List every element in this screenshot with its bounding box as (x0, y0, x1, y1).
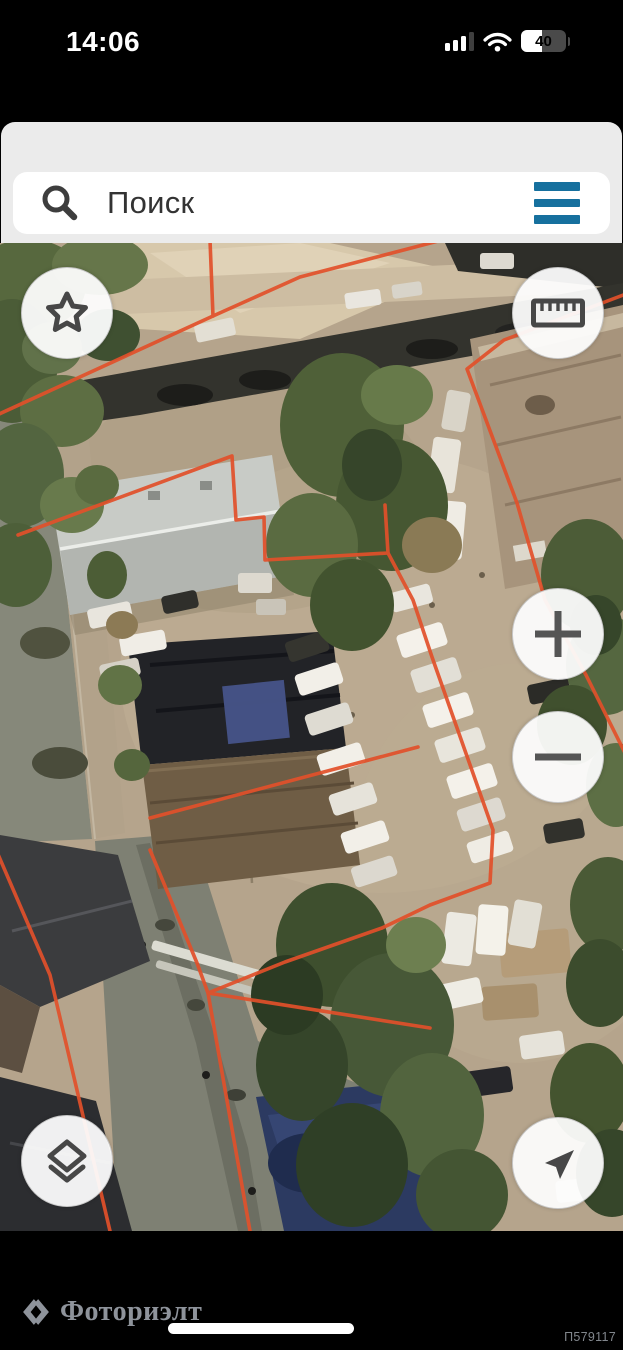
minus-icon (531, 730, 585, 784)
battery-icon: 40 (521, 30, 566, 52)
zoom-in-button[interactable] (512, 588, 604, 680)
phone-screen: 14:06 40 Поиск (0, 0, 623, 1350)
home-indicator[interactable] (168, 1323, 354, 1334)
fotorielt-logo-icon (22, 1298, 50, 1326)
battery-percent: 40 (521, 30, 566, 52)
location-arrow-icon (535, 1140, 581, 1186)
listing-id: П579117 (564, 1330, 616, 1344)
hamburger-menu-icon[interactable] (534, 182, 580, 224)
measure-button[interactable] (512, 267, 604, 359)
star-icon (44, 290, 90, 336)
search-placeholder: Поиск (107, 185, 534, 221)
layers-button[interactable] (21, 1115, 113, 1207)
my-location-button[interactable] (512, 1117, 604, 1209)
status-icons: 40 (445, 30, 567, 52)
wifi-icon (483, 31, 512, 52)
magnifier-icon (40, 183, 80, 223)
plus-icon (531, 607, 585, 661)
ruler-icon (531, 298, 585, 328)
app-card: Поиск (1, 122, 622, 243)
favorites-button[interactable] (21, 267, 113, 359)
zoom-out-button[interactable] (512, 711, 604, 803)
layers-icon (43, 1137, 91, 1185)
status-time: 14:06 (66, 26, 140, 58)
cellular-signal-icon (445, 32, 475, 51)
search-input[interactable]: Поиск (13, 172, 610, 234)
